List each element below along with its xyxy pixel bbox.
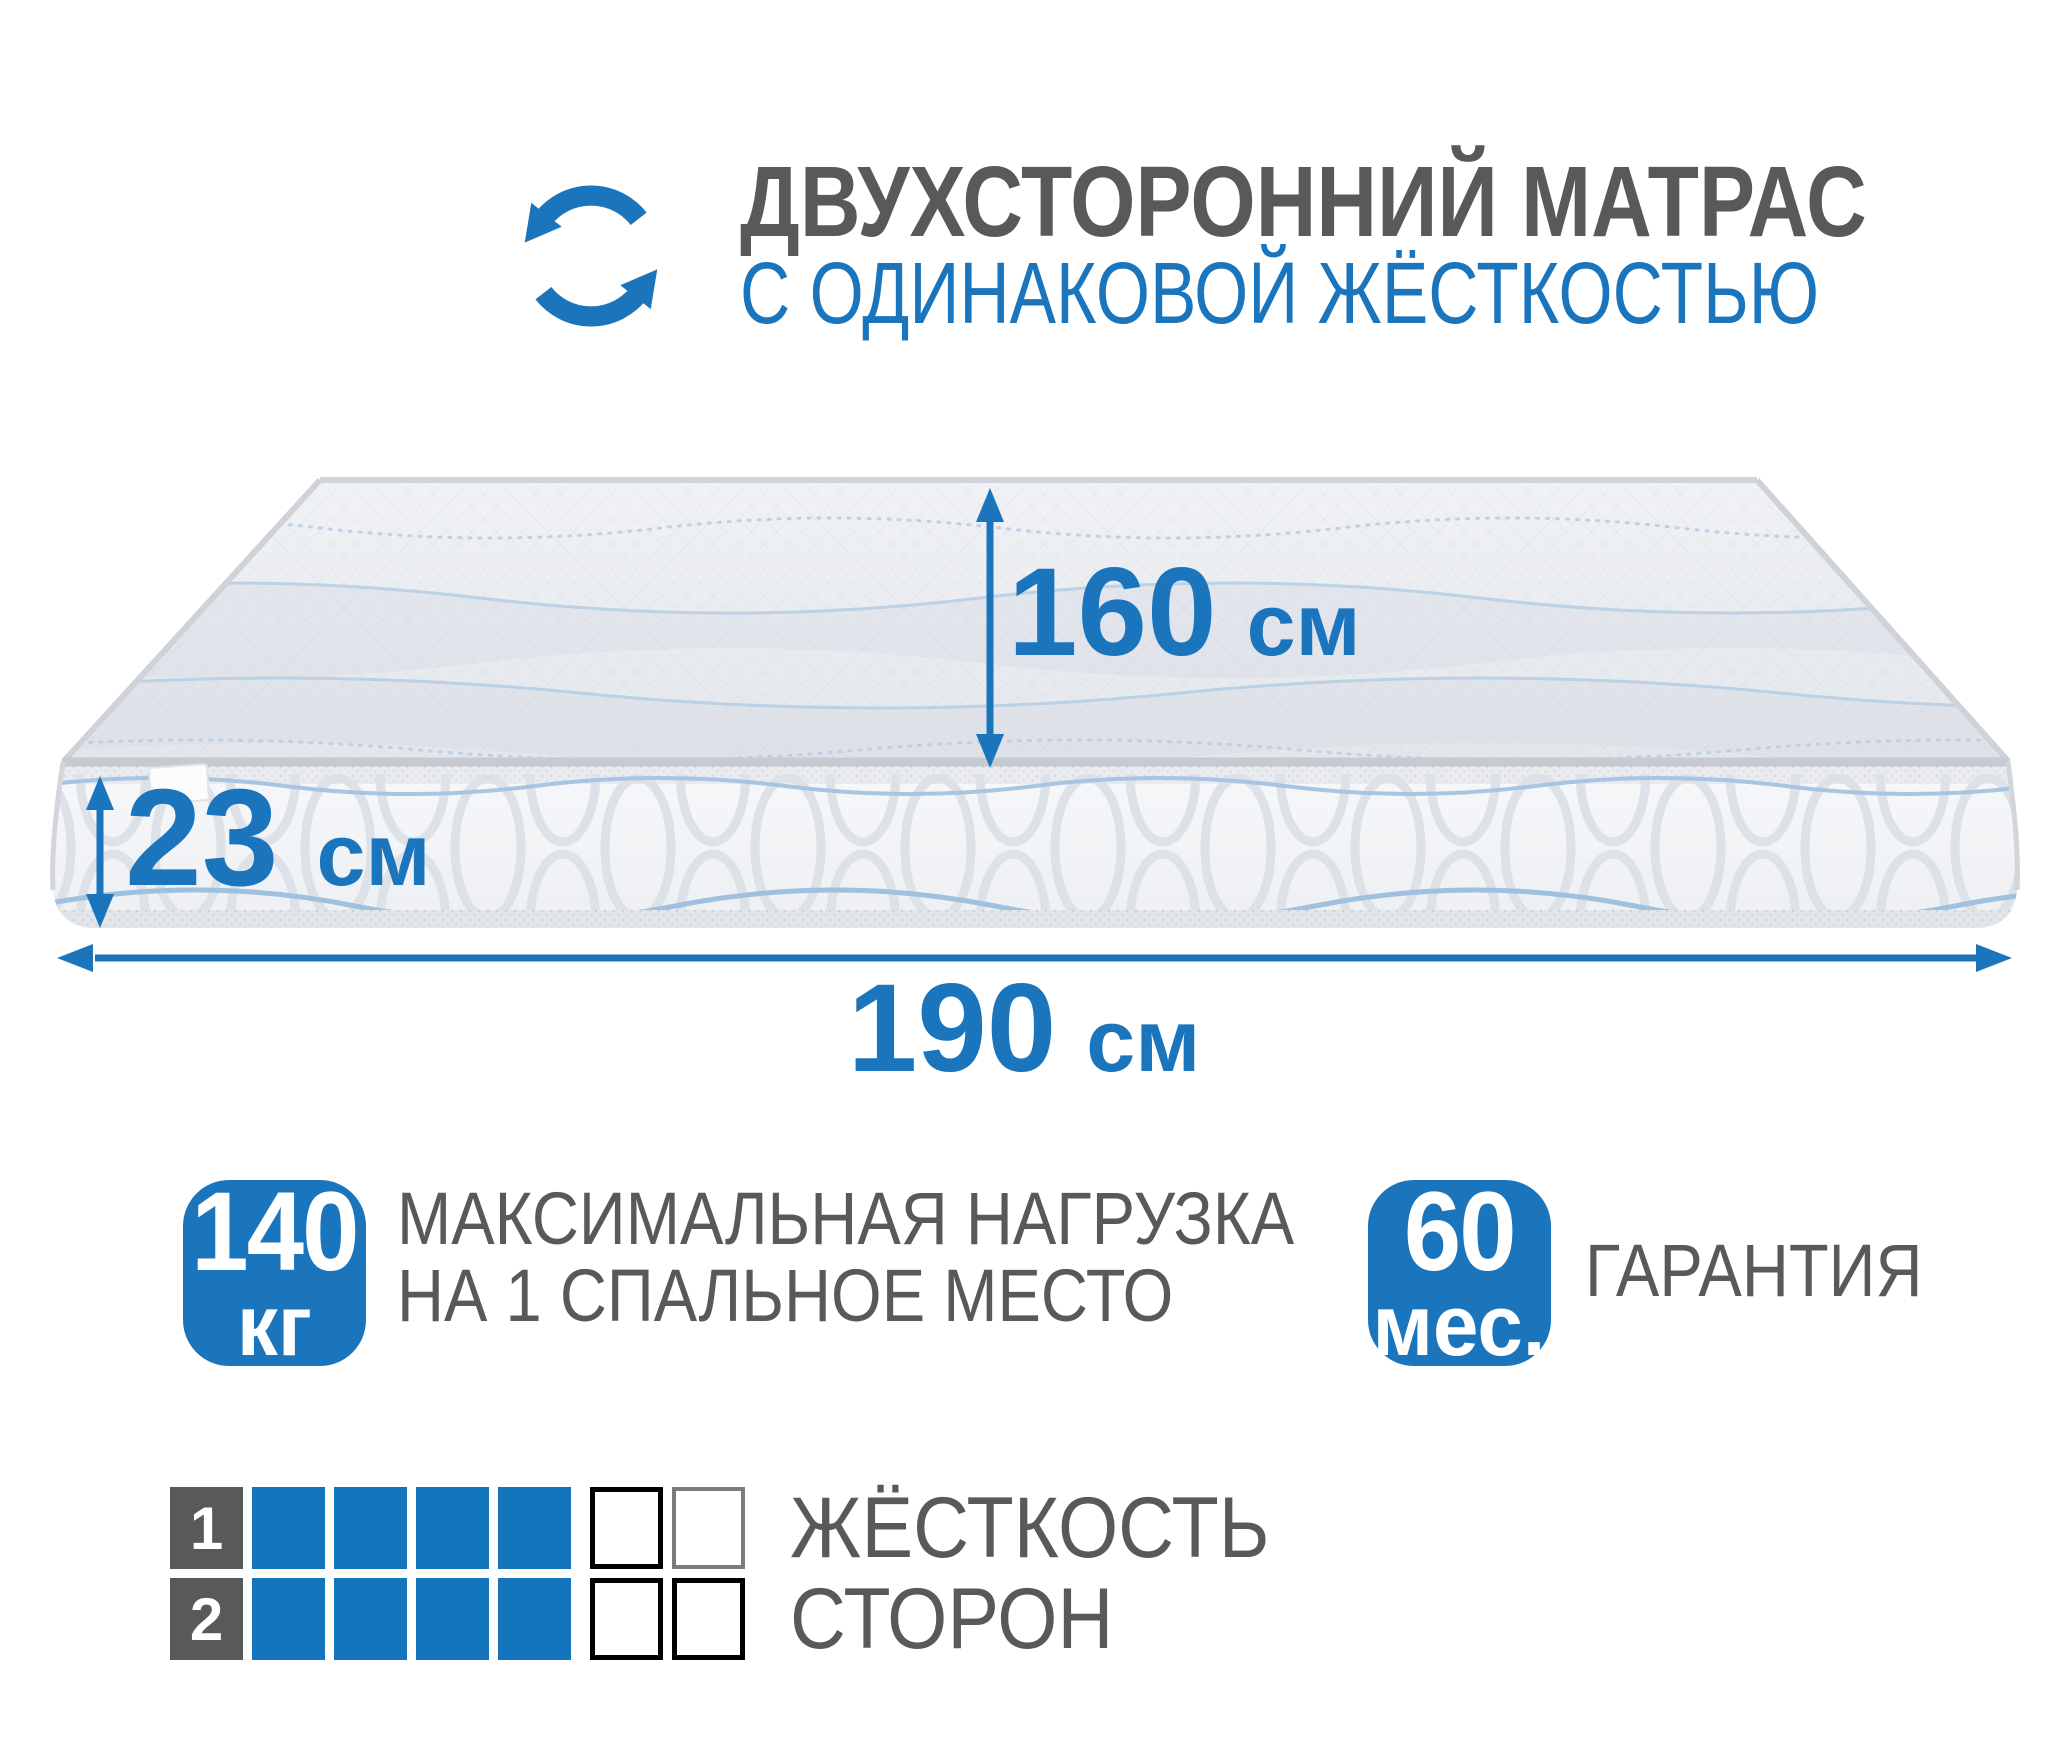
firmness-cell-filled [252, 1578, 325, 1660]
firmness-cell-filled [334, 1487, 407, 1569]
page-subtitle-text: С ОДИНАКОВОЙ ЖЁСТКОСТЬЮ [740, 250, 1819, 337]
firmness-cell-filled [416, 1578, 489, 1660]
warranty-badge: 60 мес. [1368, 1180, 1551, 1366]
rotate-arrows-icon [503, 172, 679, 340]
max-load-label-line1: МАКСИМАЛЬНАЯ НАГРУЗКА [397, 1182, 1417, 1256]
firmness-cell-empty [590, 1487, 663, 1569]
warranty-unit: мес. [1373, 1287, 1546, 1366]
warranty-label: ГАРАНТИЯ [1585, 1234, 1969, 1308]
max-load-unit: кг [237, 1287, 312, 1366]
firmness-cell-filled [252, 1487, 325, 1569]
dimension-length-value: 190 [848, 959, 1057, 1098]
firmness-cell-empty [590, 1578, 663, 1660]
dimension-height-value: 23 [125, 761, 279, 915]
firmness-side-number: 2 [170, 1578, 243, 1660]
firmness-cell-empty [672, 1487, 745, 1569]
firmness-cell-filled [498, 1578, 571, 1660]
dimension-height-label: 23см [125, 769, 431, 907]
dimension-width-label: 160см [1008, 550, 1361, 675]
firmness-cell-empty [672, 1578, 745, 1660]
dimension-height-unit: см [317, 805, 431, 904]
dimension-width-value: 160 [1008, 543, 1217, 682]
dimension-length-unit: см [1086, 991, 1200, 1090]
mattress-infographic: ДВУХСТОРОННИЙ МАТРАС С ОДИНАКОВОЙ ЖЁСТКО… [0, 0, 2048, 1757]
max-load-label-line2: НА 1 СПАЛЬНОЕ МЕСТО [397, 1259, 1279, 1333]
max-load-badge: 140 кг [183, 1180, 366, 1366]
firmness-cells [252, 1487, 754, 1569]
page-title: ДВУХСТОРОННИЙ МАТРАС [740, 152, 2048, 252]
mattress-scene: 160см 23см 190см [0, 468, 2048, 1118]
max-load-value: 140 [191, 1180, 357, 1283]
firmness-label-line2: СТОРОН [790, 1578, 1149, 1660]
firmness-label-line1: ЖЁСТКОСТЬ [790, 1487, 1323, 1569]
page-subtitle: С ОДИНАКОВОЙ ЖЁСТКОСТЬЮ [740, 250, 2048, 337]
dimension-width-unit: см [1247, 575, 1361, 674]
dimension-length-label: 190см [0, 966, 2048, 1091]
firmness-cell-filled [334, 1578, 407, 1660]
warranty-value: 60 [1404, 1180, 1515, 1283]
firmness-side-number: 1 [170, 1487, 243, 1569]
page-title-text: ДВУХСТОРОННИЙ МАТРАС [740, 152, 1867, 252]
firmness-row-side-1: 1 ЖЁСТКОСТЬ [170, 1487, 754, 1569]
firmness-scale: 1 ЖЁСТКОСТЬ 2 СТОРОН [170, 1487, 754, 1669]
firmness-cells [252, 1578, 754, 1660]
firmness-row-side-2: 2 СТОРОН [170, 1578, 754, 1660]
firmness-cell-filled [416, 1487, 489, 1569]
firmness-cell-filled [498, 1487, 571, 1569]
